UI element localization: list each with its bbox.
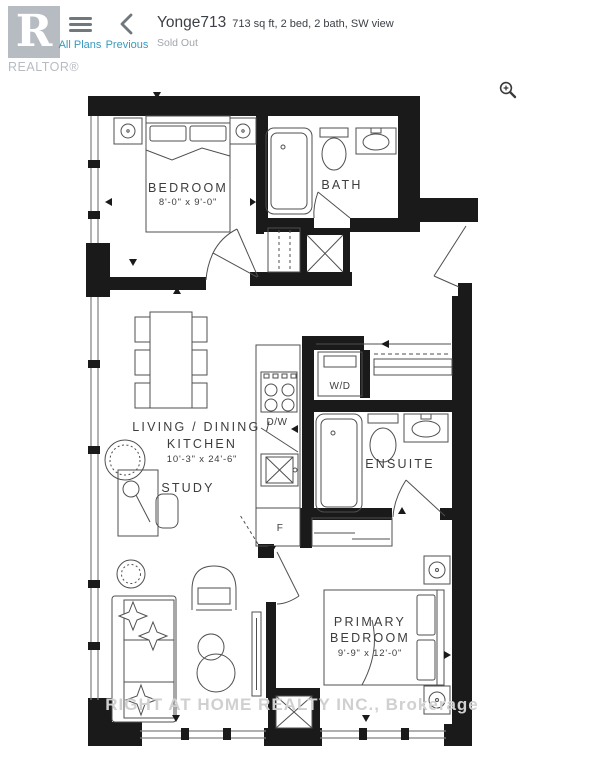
- dining-set: [135, 312, 207, 408]
- ensuite-label: ENSUITE: [365, 457, 435, 471]
- living-label-line1: LIVING / DINING /: [132, 420, 272, 434]
- floor-plan-image: BEDROOM 8'-0" x 9'-0" BATH LIVING / DINI…: [0, 0, 601, 762]
- living-label-line2: KITCHEN: [167, 437, 237, 451]
- fridge-label: F: [277, 523, 284, 534]
- bath-fixtures: [266, 128, 396, 218]
- sliding-door-panel: [252, 612, 261, 696]
- dishwasher-label: D/W: [267, 417, 288, 428]
- bedroom-dims: 8'-0" x 9'-0": [159, 197, 217, 208]
- shaft-upper: [307, 235, 343, 272]
- primary-closet: [312, 518, 392, 546]
- living-dims: 10'-3" x 24'-6": [167, 454, 237, 465]
- primary-label-line1: PRIMARY: [334, 615, 406, 629]
- washer-dryer-label: W/D: [330, 381, 351, 392]
- bath-label: BATH: [321, 178, 362, 192]
- primary-dims: 9'-9" x 12'-0": [338, 648, 402, 659]
- primary-label-line2: BEDROOM: [330, 631, 410, 645]
- entry-door: [434, 226, 466, 287]
- kitchen-fixtures: [240, 345, 300, 546]
- brokerage-watermark: RIGHT AT HOME REALTY INC., Brokerage: [105, 695, 479, 714]
- bedroom-label: BEDROOM: [148, 181, 228, 195]
- study-label: STUDY: [161, 481, 214, 495]
- primary-door: [277, 552, 299, 604]
- page: { "header": { "logo_text": "REALTOR®", "…: [0, 0, 601, 762]
- hall-closet: [268, 228, 300, 272]
